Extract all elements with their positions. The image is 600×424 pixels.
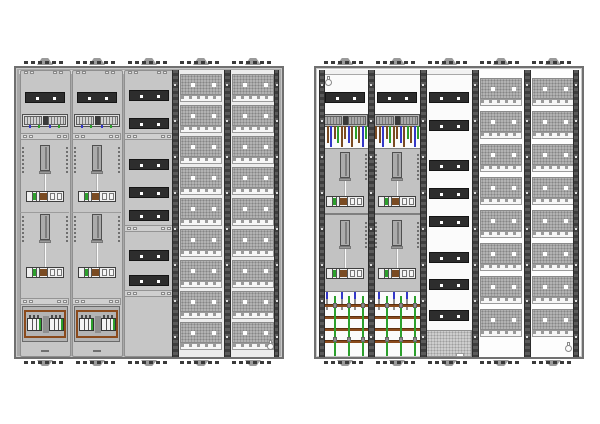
bracket-screws-top — [428, 61, 470, 64]
frame-rail — [368, 70, 375, 357]
joint-clip-mark — [167, 227, 171, 230]
keyhole-mark — [324, 76, 332, 86]
panel-clip-mark — [24, 71, 28, 74]
rail-dot — [226, 336, 228, 338]
meter-tail-wire-blue — [378, 292, 380, 299]
panel-hinge-perforation — [22, 216, 24, 242]
cover-dot — [212, 114, 216, 118]
cover-dot — [191, 176, 195, 180]
bracket-screws-bottom — [180, 361, 222, 364]
busbar-cover-strip — [129, 159, 169, 170]
cover-dot — [564, 153, 568, 157]
rail-dot — [174, 120, 176, 122]
wiring-loom-wire — [375, 126, 377, 139]
din-carrier-strip — [480, 165, 522, 172]
perforated-cover — [232, 136, 274, 157]
gland-plate — [426, 330, 472, 357]
cover-dot — [543, 120, 547, 124]
indicator-dot — [88, 97, 91, 100]
busbar-cover-strip — [429, 92, 469, 103]
indicator-dot — [353, 97, 356, 100]
cover-dot — [212, 176, 216, 180]
indicator-dot — [157, 280, 160, 283]
strip-cell-sep — [36, 192, 37, 201]
cover-dot — [491, 219, 495, 223]
cover-dot — [491, 252, 495, 256]
meter-bar-slot — [97, 216, 99, 238]
strip-cell-sep — [391, 197, 392, 206]
din-carrier-strip — [232, 126, 274, 133]
cover-dot — [212, 269, 216, 273]
rail-dot — [321, 156, 323, 158]
panel-hinge-perforation — [375, 154, 377, 180]
panel-clip-mark — [105, 71, 109, 74]
indicator-dot — [457, 257, 460, 260]
rail-dot — [370, 336, 372, 338]
joint-clip-mark — [75, 300, 79, 303]
rail-dot — [370, 300, 372, 302]
rail-dot — [226, 264, 228, 266]
rail-dot — [575, 336, 577, 338]
perforated-cover — [480, 210, 522, 231]
cover-dot — [243, 176, 247, 180]
meter-hanger-stem — [396, 249, 398, 268]
wiring-loom-wire — [403, 126, 405, 147]
indicator-dot — [440, 221, 443, 224]
strip-cell-sep — [339, 269, 340, 278]
rail-dot — [422, 120, 424, 122]
meter-bar-slot — [45, 147, 47, 169]
cover-dot — [191, 300, 195, 304]
joint-clip-mark — [29, 135, 33, 138]
rail-dot — [526, 228, 528, 230]
din-carrier-strip — [532, 99, 574, 106]
panel-clip-mark — [30, 71, 34, 74]
panel-clip-mark — [157, 71, 161, 74]
din-carrier-strip — [532, 198, 574, 205]
joint-clip-mark — [57, 135, 61, 138]
rail-dot — [174, 300, 176, 302]
joint-clip-mark — [23, 135, 27, 138]
indicator-dot — [140, 95, 143, 98]
perforated-cover — [532, 144, 574, 165]
breaker-sep — [36, 319, 37, 330]
perforated-cover — [532, 276, 574, 297]
busbar-cover-strip — [377, 92, 417, 103]
perforated-cover — [480, 276, 522, 297]
din-carrier-strip — [532, 297, 574, 304]
din-carrier-strip — [532, 165, 574, 172]
cover-dot — [512, 318, 516, 322]
rail-dot — [575, 120, 577, 122]
strip-cell-sep — [332, 197, 333, 206]
rail-dot — [526, 192, 528, 194]
busbar-cover-strip — [129, 118, 169, 129]
perforated-cover — [232, 229, 274, 250]
strip-cell-box — [50, 269, 55, 276]
cover-dot — [564, 252, 568, 256]
wiring-loom-wire — [344, 126, 346, 139]
breaker-element — [79, 318, 94, 331]
bracket-screws-top — [128, 61, 170, 64]
bracket-screws-top — [532, 61, 574, 64]
sls-switch-module — [22, 306, 68, 342]
meter-hanger-stem — [44, 243, 46, 267]
cover-dot — [243, 207, 247, 211]
strip-cell-sep — [32, 268, 33, 277]
terminal-segment-group — [400, 116, 418, 125]
rail-dot — [174, 264, 176, 266]
keyhole-circle — [325, 79, 332, 86]
cover-dot — [543, 252, 547, 256]
breaker-green-stripe — [39, 319, 41, 330]
frame-rail — [573, 70, 579, 357]
frame-rail — [524, 70, 531, 357]
bracket-screws-bottom — [76, 361, 118, 364]
terminal-segment-group — [48, 116, 66, 125]
keyhole-mark — [266, 340, 274, 350]
meter-hanger-stem — [96, 243, 98, 267]
cabinet-covered — [14, 66, 284, 359]
indicator-dot — [457, 221, 460, 224]
meter-fixing-bar — [340, 220, 350, 246]
meter-fixing-bar — [392, 220, 402, 246]
busbar-end — [24, 310, 26, 338]
rail-dot — [276, 300, 278, 302]
terminal-wire-tick — [90, 125, 92, 128]
meter-tail-wire-blue — [326, 292, 328, 299]
rail-dot — [321, 120, 323, 122]
rail-dot — [422, 300, 424, 302]
strip-cell-box — [350, 270, 355, 277]
perforated-cover — [480, 144, 522, 165]
perforated-cover — [180, 167, 222, 188]
meter-hanger-stem — [344, 249, 346, 268]
terminal-wire-tick — [101, 125, 103, 128]
breaker-green-stripe — [113, 319, 115, 330]
cover-dot — [564, 285, 568, 289]
joint-clip-mark — [127, 227, 131, 230]
rail-dot — [422, 156, 424, 158]
cover-dot — [264, 114, 268, 118]
strip-cell-box — [357, 270, 362, 277]
rail-dot — [422, 336, 424, 338]
busbar-end — [64, 310, 66, 338]
wiring-loom-wire — [365, 126, 367, 139]
panel-seam-line — [20, 212, 69, 213]
panel-clip-mark — [128, 71, 132, 74]
bracket-screws-bottom — [532, 361, 574, 364]
cover-dot — [491, 153, 495, 157]
strip-cell-sep — [399, 197, 400, 206]
terminal-segment-group — [100, 116, 118, 125]
panel-clip-mark — [76, 71, 80, 74]
rail-dot — [370, 156, 372, 158]
indicator-dot — [36, 97, 39, 100]
strip-cell-sep — [391, 269, 392, 278]
strip-cell-sep — [347, 197, 348, 206]
rail-dot — [474, 120, 476, 122]
strip-cell-box — [409, 198, 414, 205]
panel-joint-rail — [124, 290, 173, 297]
rail-dot — [174, 192, 176, 194]
bracket-screws-bottom — [128, 361, 170, 364]
wire-clamp — [347, 337, 351, 342]
indicator-dot — [388, 97, 391, 100]
wire-clamp — [385, 303, 389, 308]
cover-dot — [564, 219, 568, 223]
cover-dot — [264, 145, 268, 149]
rail-dot — [526, 300, 528, 302]
indicator-dot — [157, 192, 160, 195]
cover-dot — [564, 120, 568, 124]
panel-hinge-perforation — [66, 216, 68, 242]
joint-clip-mark — [133, 135, 137, 138]
strip-cell-sep — [39, 192, 40, 201]
din-carrier-strip — [180, 219, 222, 226]
strip-cell-sep — [84, 268, 85, 277]
rail-dot — [474, 228, 476, 230]
cover-dot — [491, 186, 495, 190]
perforated-cover — [232, 260, 274, 281]
din-carrier-strip — [480, 297, 522, 304]
module-center-cover — [95, 316, 101, 333]
strip-cell-sep — [399, 269, 400, 278]
din-carrier-strip — [480, 264, 522, 271]
cover-dot — [243, 238, 247, 242]
strip-cell-box — [350, 198, 355, 205]
din-carrier-strip — [232, 219, 274, 226]
strip-cell-box — [57, 269, 62, 276]
rail-dot — [321, 264, 323, 266]
indicator-dot — [440, 125, 443, 128]
gland-notch — [456, 353, 464, 357]
indicator-dot — [457, 125, 460, 128]
cover-dot — [264, 269, 268, 273]
meter-terminal-strip — [26, 191, 64, 202]
cover-dot — [191, 238, 195, 242]
cover-dot — [512, 186, 516, 190]
wire-clamp — [347, 303, 351, 308]
breaker-sep — [32, 319, 33, 330]
panel-hinge-perforation — [66, 147, 68, 173]
joint-clip-mark — [63, 300, 67, 303]
rail-dot — [370, 264, 372, 266]
cover-handle-mark — [41, 350, 49, 352]
wiring-loom-wire — [362, 126, 364, 147]
breaker-green-stripe — [61, 319, 63, 330]
din-carrier-strip — [480, 231, 522, 238]
terminal-segment-group — [24, 116, 42, 125]
din-carrier-strip — [180, 188, 222, 195]
perforated-cover — [180, 291, 222, 312]
busbar-cover-strip — [129, 90, 169, 101]
indicator-dot — [457, 284, 460, 287]
cover-dot — [564, 318, 568, 322]
panel-hinge-perforation — [118, 147, 120, 173]
cover-dot — [243, 83, 247, 87]
strip-cell-sep — [88, 268, 89, 277]
perforated-cover — [480, 78, 522, 99]
busbar-cover-strip — [129, 250, 169, 261]
bracket-screws-bottom — [376, 361, 418, 364]
indicator-dot — [457, 193, 460, 196]
cover-handle-mark — [93, 350, 101, 352]
module-center-cover — [43, 316, 49, 333]
meter-bar-slot — [97, 147, 99, 169]
rail-dot — [575, 84, 577, 86]
rail-dot — [174, 228, 176, 230]
rail-dot — [474, 156, 476, 158]
strip-cell-sep — [336, 269, 337, 278]
meter-terminal-strip — [26, 267, 64, 278]
breaker-sep — [106, 319, 107, 330]
perforated-cover — [532, 309, 574, 330]
busbar-cover-strip — [129, 275, 169, 286]
rail-dot — [321, 228, 323, 230]
bracket-screws-top — [376, 61, 418, 64]
strip-cell-sep — [388, 269, 389, 278]
rail-dot — [370, 84, 372, 86]
indicator-dot — [440, 315, 443, 318]
wiring-loom-wire — [351, 126, 353, 147]
strip-cell-sep — [39, 268, 40, 277]
wiring-loom-wire — [379, 126, 381, 143]
din-carrier-strip — [232, 188, 274, 195]
din-carrier-strip — [532, 264, 574, 271]
meter-fixing-bar — [392, 152, 402, 178]
panel-clip-mark — [111, 71, 115, 74]
busbar-line — [76, 336, 118, 338]
cover-dot — [264, 331, 268, 335]
perforated-cover — [480, 243, 522, 264]
wiring-loom-wire — [389, 126, 391, 143]
rail-dot — [226, 228, 228, 230]
frame-rail — [472, 70, 479, 357]
bracket-screws-bottom — [480, 361, 522, 364]
strip-cell-sep — [84, 192, 85, 201]
cover-dot — [512, 153, 516, 157]
cover-dot — [264, 300, 268, 304]
rail-dot — [474, 192, 476, 194]
strip-cell-sep — [339, 197, 340, 206]
bracket-screws-bottom — [24, 361, 66, 364]
indicator-dot — [140, 164, 143, 167]
indicator-dot — [440, 97, 443, 100]
rail-dot — [526, 120, 528, 122]
cover-dot — [543, 318, 547, 322]
panel-hinge-perforation — [417, 222, 419, 248]
busbar-end — [116, 310, 118, 338]
indicator-dot — [440, 193, 443, 196]
din-carrier-strip — [180, 95, 222, 102]
perforated-cover — [232, 74, 274, 95]
meter-terminal-strip — [378, 268, 416, 279]
busbar-cover-strip — [429, 188, 469, 199]
cabinet-open-frame — [314, 66, 584, 359]
panel-hinge-perforation — [22, 147, 24, 173]
cover-dot — [543, 285, 547, 289]
panel-clip-mark — [82, 71, 86, 74]
rail-dot — [276, 156, 278, 158]
cover-dot — [191, 145, 195, 149]
cover-dot — [512, 219, 516, 223]
perforated-cover — [480, 177, 522, 198]
wiring-loom-wire — [337, 126, 339, 143]
joint-clip-mark — [57, 300, 61, 303]
bracket-screws-top — [24, 61, 66, 64]
cover-dot — [491, 87, 495, 91]
breaker-sep — [88, 319, 89, 330]
indicator-dot — [157, 123, 160, 126]
indicator-dot — [336, 97, 339, 100]
cover-dot — [491, 120, 495, 124]
rail-dot — [321, 300, 323, 302]
terminal-block-row — [74, 114, 120, 127]
cover-dot — [212, 145, 216, 149]
rail-dot — [526, 336, 528, 338]
din-carrier-strip — [232, 250, 274, 257]
meter-tail-wire-blue — [393, 292, 395, 299]
panel-hinge-perforation — [74, 216, 76, 242]
rail-dot — [226, 84, 228, 86]
cover-dot — [543, 153, 547, 157]
busbar-cover-strip — [429, 310, 469, 321]
joint-clip-mark — [127, 292, 131, 295]
frame-rail — [420, 70, 427, 357]
rail-dot — [474, 84, 476, 86]
rail-dot — [422, 264, 424, 266]
strip-cell-brown — [92, 193, 99, 200]
strip-cell-sep — [384, 197, 385, 206]
busbar-end — [76, 310, 78, 338]
meter-fixing-bar — [340, 152, 350, 178]
terminal-wire-tick — [38, 125, 40, 128]
din-carrier-strip — [180, 281, 222, 288]
perforated-cover — [180, 260, 222, 281]
terminal-segment-group — [324, 116, 342, 125]
perforated-cover — [532, 210, 574, 231]
strip-cell-brown — [40, 193, 47, 200]
joint-clip-mark — [109, 135, 113, 138]
din-carrier-strip — [232, 95, 274, 102]
strip-cell-box — [102, 193, 107, 200]
meter-cabinet-diagram — [0, 0, 600, 424]
rail-dot — [276, 120, 278, 122]
din-carrier-strip — [180, 157, 222, 164]
meter-hanger-stem — [396, 181, 398, 196]
wiring-loom-wire — [393, 126, 395, 147]
cover-dot — [191, 83, 195, 87]
wiring-loom-wire — [348, 126, 350, 143]
wiring-loom-wire — [327, 126, 329, 143]
meter-hanger-stem — [44, 174, 46, 191]
terminal-wire-tick — [58, 125, 60, 128]
breaker-sep — [58, 319, 59, 330]
strip-cell-box — [57, 193, 62, 200]
cover-dot — [243, 269, 247, 273]
din-carrier-strip — [480, 330, 522, 337]
frame-rail — [172, 70, 179, 357]
wire-clamp — [333, 337, 337, 342]
sls-switch-module — [74, 306, 120, 342]
perforated-cover — [232, 105, 274, 126]
busbar-line — [24, 310, 66, 312]
terminal-center-gap — [95, 116, 100, 125]
joint-clip-mark — [167, 292, 171, 295]
joint-clip-mark — [63, 135, 67, 138]
joint-clip-mark — [161, 227, 165, 230]
